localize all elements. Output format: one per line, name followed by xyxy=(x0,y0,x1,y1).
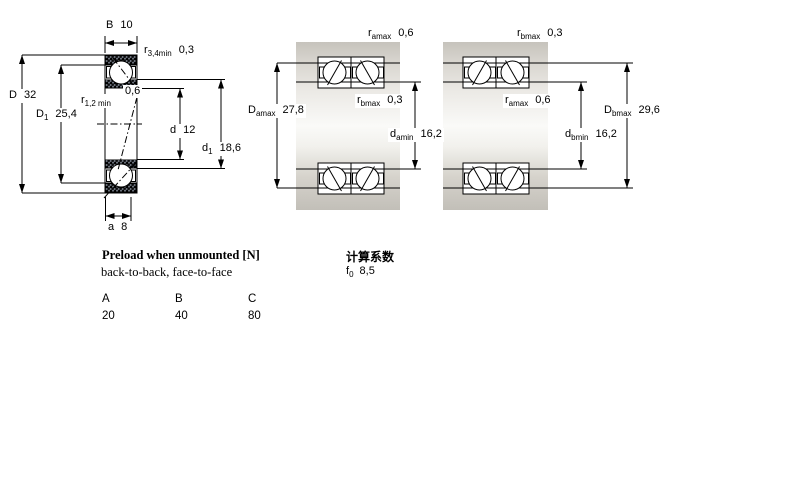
label-r12min: r1,2 min xyxy=(79,94,113,108)
label-dbmin: dbmin16,2 xyxy=(563,128,619,142)
bearing-pair-top xyxy=(463,57,529,88)
ball-bottom xyxy=(110,164,133,187)
label-ramax-right: ramax0,6 xyxy=(503,94,553,108)
label-Damax: Damax27,8 xyxy=(246,104,306,118)
bearing-pair-top xyxy=(318,57,384,88)
label-D1: D125,4 xyxy=(34,108,79,122)
middle-paired-mounting xyxy=(277,42,421,210)
preload-title: Preload when unmounted [N] xyxy=(102,248,260,263)
dim-a xyxy=(106,197,132,221)
preload-value: 80 xyxy=(248,310,321,322)
calculation-factors-title: 计算系数 xyxy=(346,248,394,265)
ball-top xyxy=(110,61,133,84)
preload-table-value-row: 204080 xyxy=(102,310,321,322)
label-a: a8 xyxy=(106,221,129,235)
preload-value: 40 xyxy=(175,310,248,322)
preload-col-header: B xyxy=(175,293,248,305)
preload-col-header: A xyxy=(102,293,175,305)
label-Dbmax: Dbmax29,6 xyxy=(602,104,662,118)
label-r34min: r3,4min0,3 xyxy=(142,44,196,58)
label-r12min-value: 0,6 xyxy=(123,85,142,98)
preload-col-header: C xyxy=(248,293,321,305)
label-rbmax-right: rbmax0,3 xyxy=(515,27,565,41)
label-d: d12 xyxy=(168,124,197,138)
dim-D xyxy=(22,55,105,193)
label-f0: f08,5 xyxy=(344,265,377,279)
label-d1: d118,6 xyxy=(200,142,243,156)
right-paired-mounting xyxy=(443,42,633,210)
bearing-pair-bottom xyxy=(318,163,384,194)
preload-value: 20 xyxy=(102,310,175,322)
preload-table-header-row: ABC xyxy=(102,293,321,305)
label-B: B10 xyxy=(104,19,135,33)
label-damin: damin16,2 xyxy=(388,128,444,142)
label-ramax-middle: ramax0,6 xyxy=(366,27,416,41)
bearing-specification-figure: B10 r3,4min0,3 D32 D125,4 r1,2 min 0,6 d… xyxy=(0,0,800,500)
dim-B xyxy=(105,36,137,53)
label-D: D32 xyxy=(7,89,38,103)
bearing-pair-bottom xyxy=(463,163,529,194)
label-rbmax-middle: rbmax0,3 xyxy=(355,94,405,108)
preload-subtitle: back-to-back, face-to-face xyxy=(101,265,232,280)
